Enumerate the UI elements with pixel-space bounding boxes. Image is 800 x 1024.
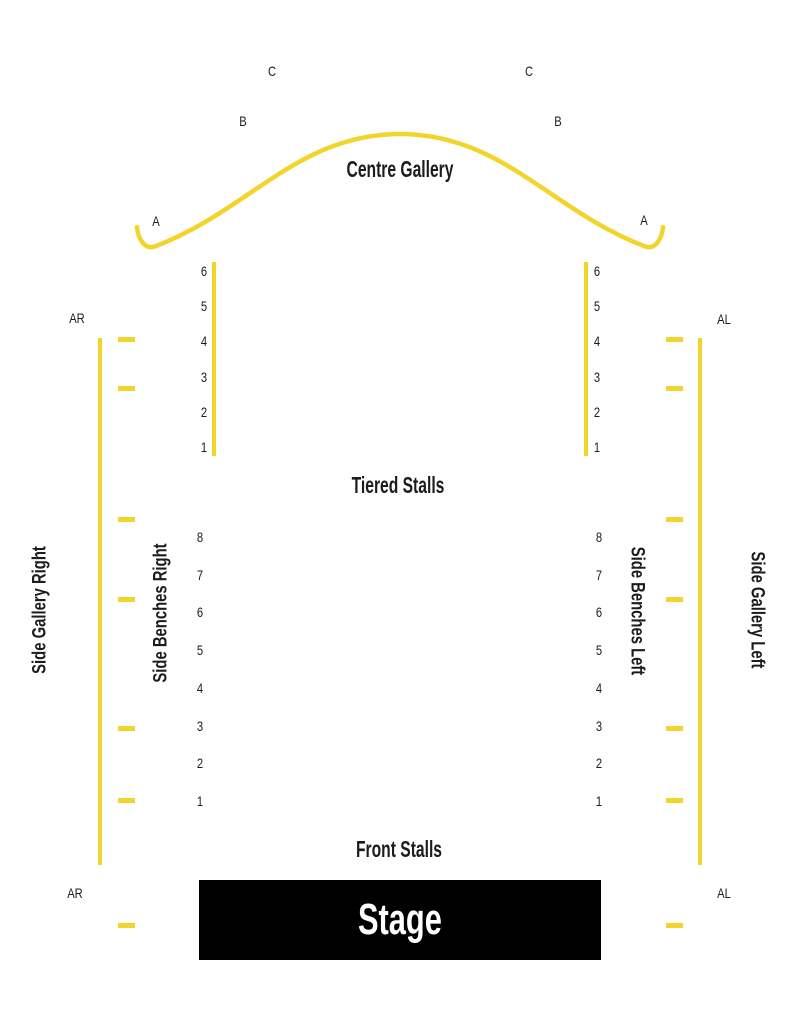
aisle-tick — [118, 923, 135, 928]
row-number: 2 — [593, 754, 604, 772]
row-number: 8 — [194, 528, 205, 546]
row-number: 1 — [198, 438, 209, 456]
row-number: 4 — [593, 679, 604, 697]
aisle-tick — [118, 386, 135, 391]
tiered-stalls-rail-right — [584, 262, 588, 456]
gallery-row-label-c-right: C — [518, 63, 540, 79]
centre-gallery-arc — [0, 0, 800, 280]
tiered-stalls-label: Tiered Stalls — [323, 473, 473, 497]
aisle-tick — [118, 337, 135, 342]
row-number: 6 — [591, 262, 602, 280]
row-number: 5 — [198, 297, 209, 315]
gallery-row-label-b-left: B — [232, 113, 254, 129]
side-gallery-right-rail — [98, 338, 102, 865]
gallery-end-label-ar-bottom: AR — [64, 885, 86, 901]
row-number: 3 — [194, 717, 205, 735]
side-gallery-left-label: Side Gallery Left — [748, 552, 767, 669]
aisle-tick — [666, 798, 683, 803]
aisle-tick — [666, 923, 683, 928]
row-number: 4 — [194, 679, 205, 697]
aisle-tick — [666, 337, 683, 342]
seating-plan: C C B B A A Centre Gallery 6 5 4 3 2 1 6… — [0, 0, 800, 1024]
gallery-row-label-a-left: A — [145, 213, 167, 229]
side-benches-right-label: Side Benches Right — [152, 543, 171, 682]
centre-gallery-label: Centre Gallery — [325, 157, 475, 181]
aisle-tick — [118, 517, 135, 522]
tiered-stalls-rail-left — [212, 262, 216, 456]
row-number: 6 — [194, 603, 205, 621]
row-number: 4 — [198, 332, 209, 350]
stage: Stage — [199, 880, 601, 960]
row-number: 2 — [198, 403, 209, 421]
gallery-row-label-c-left: C — [261, 63, 283, 79]
tiered-stalls-row-numbers-right: 6 5 4 3 2 1 — [590, 262, 604, 456]
row-number: 2 — [591, 403, 602, 421]
row-number: 1 — [194, 792, 205, 810]
row-number: 3 — [593, 717, 604, 735]
side-gallery-left-rail — [698, 338, 702, 865]
gallery-end-label-al-top: AL — [713, 311, 735, 327]
aisle-tick — [118, 726, 135, 731]
aisle-tick — [666, 726, 683, 731]
aisle-tick — [118, 597, 135, 602]
tiered-stalls-row-numbers-left: 6 5 4 3 2 1 — [197, 262, 211, 456]
side-benches-left-row-numbers: 8 7 6 5 4 3 2 1 — [592, 528, 606, 810]
row-number: 5 — [194, 641, 205, 659]
row-number: 8 — [593, 528, 604, 546]
aisle-tick — [666, 517, 683, 522]
gallery-row-label-a-right: A — [633, 212, 655, 228]
aisle-tick — [666, 597, 683, 602]
row-number: 7 — [194, 566, 205, 584]
gallery-end-label-ar-top: AR — [66, 310, 88, 326]
gallery-row-label-b-right: B — [547, 113, 569, 129]
row-number: 4 — [591, 332, 602, 350]
row-number: 6 — [593, 603, 604, 621]
stage-label: Stage — [358, 895, 442, 945]
row-number: 7 — [593, 566, 604, 584]
side-gallery-right-label: Side Gallery Right — [31, 546, 50, 674]
gallery-end-label-al-bottom: AL — [713, 885, 735, 901]
row-number: 5 — [593, 641, 604, 659]
row-number: 3 — [591, 368, 602, 386]
aisle-tick — [666, 386, 683, 391]
side-benches-right-row-numbers: 8 7 6 5 4 3 2 1 — [193, 528, 207, 810]
side-benches-left-label: Side Benches Left — [628, 547, 647, 675]
row-number: 1 — [593, 792, 604, 810]
aisle-tick — [118, 798, 135, 803]
row-number: 2 — [194, 754, 205, 772]
row-number: 6 — [198, 262, 209, 280]
row-number: 1 — [591, 438, 602, 456]
row-number: 3 — [198, 368, 209, 386]
row-number: 5 — [591, 297, 602, 315]
front-stalls-label: Front Stalls — [324, 837, 474, 861]
